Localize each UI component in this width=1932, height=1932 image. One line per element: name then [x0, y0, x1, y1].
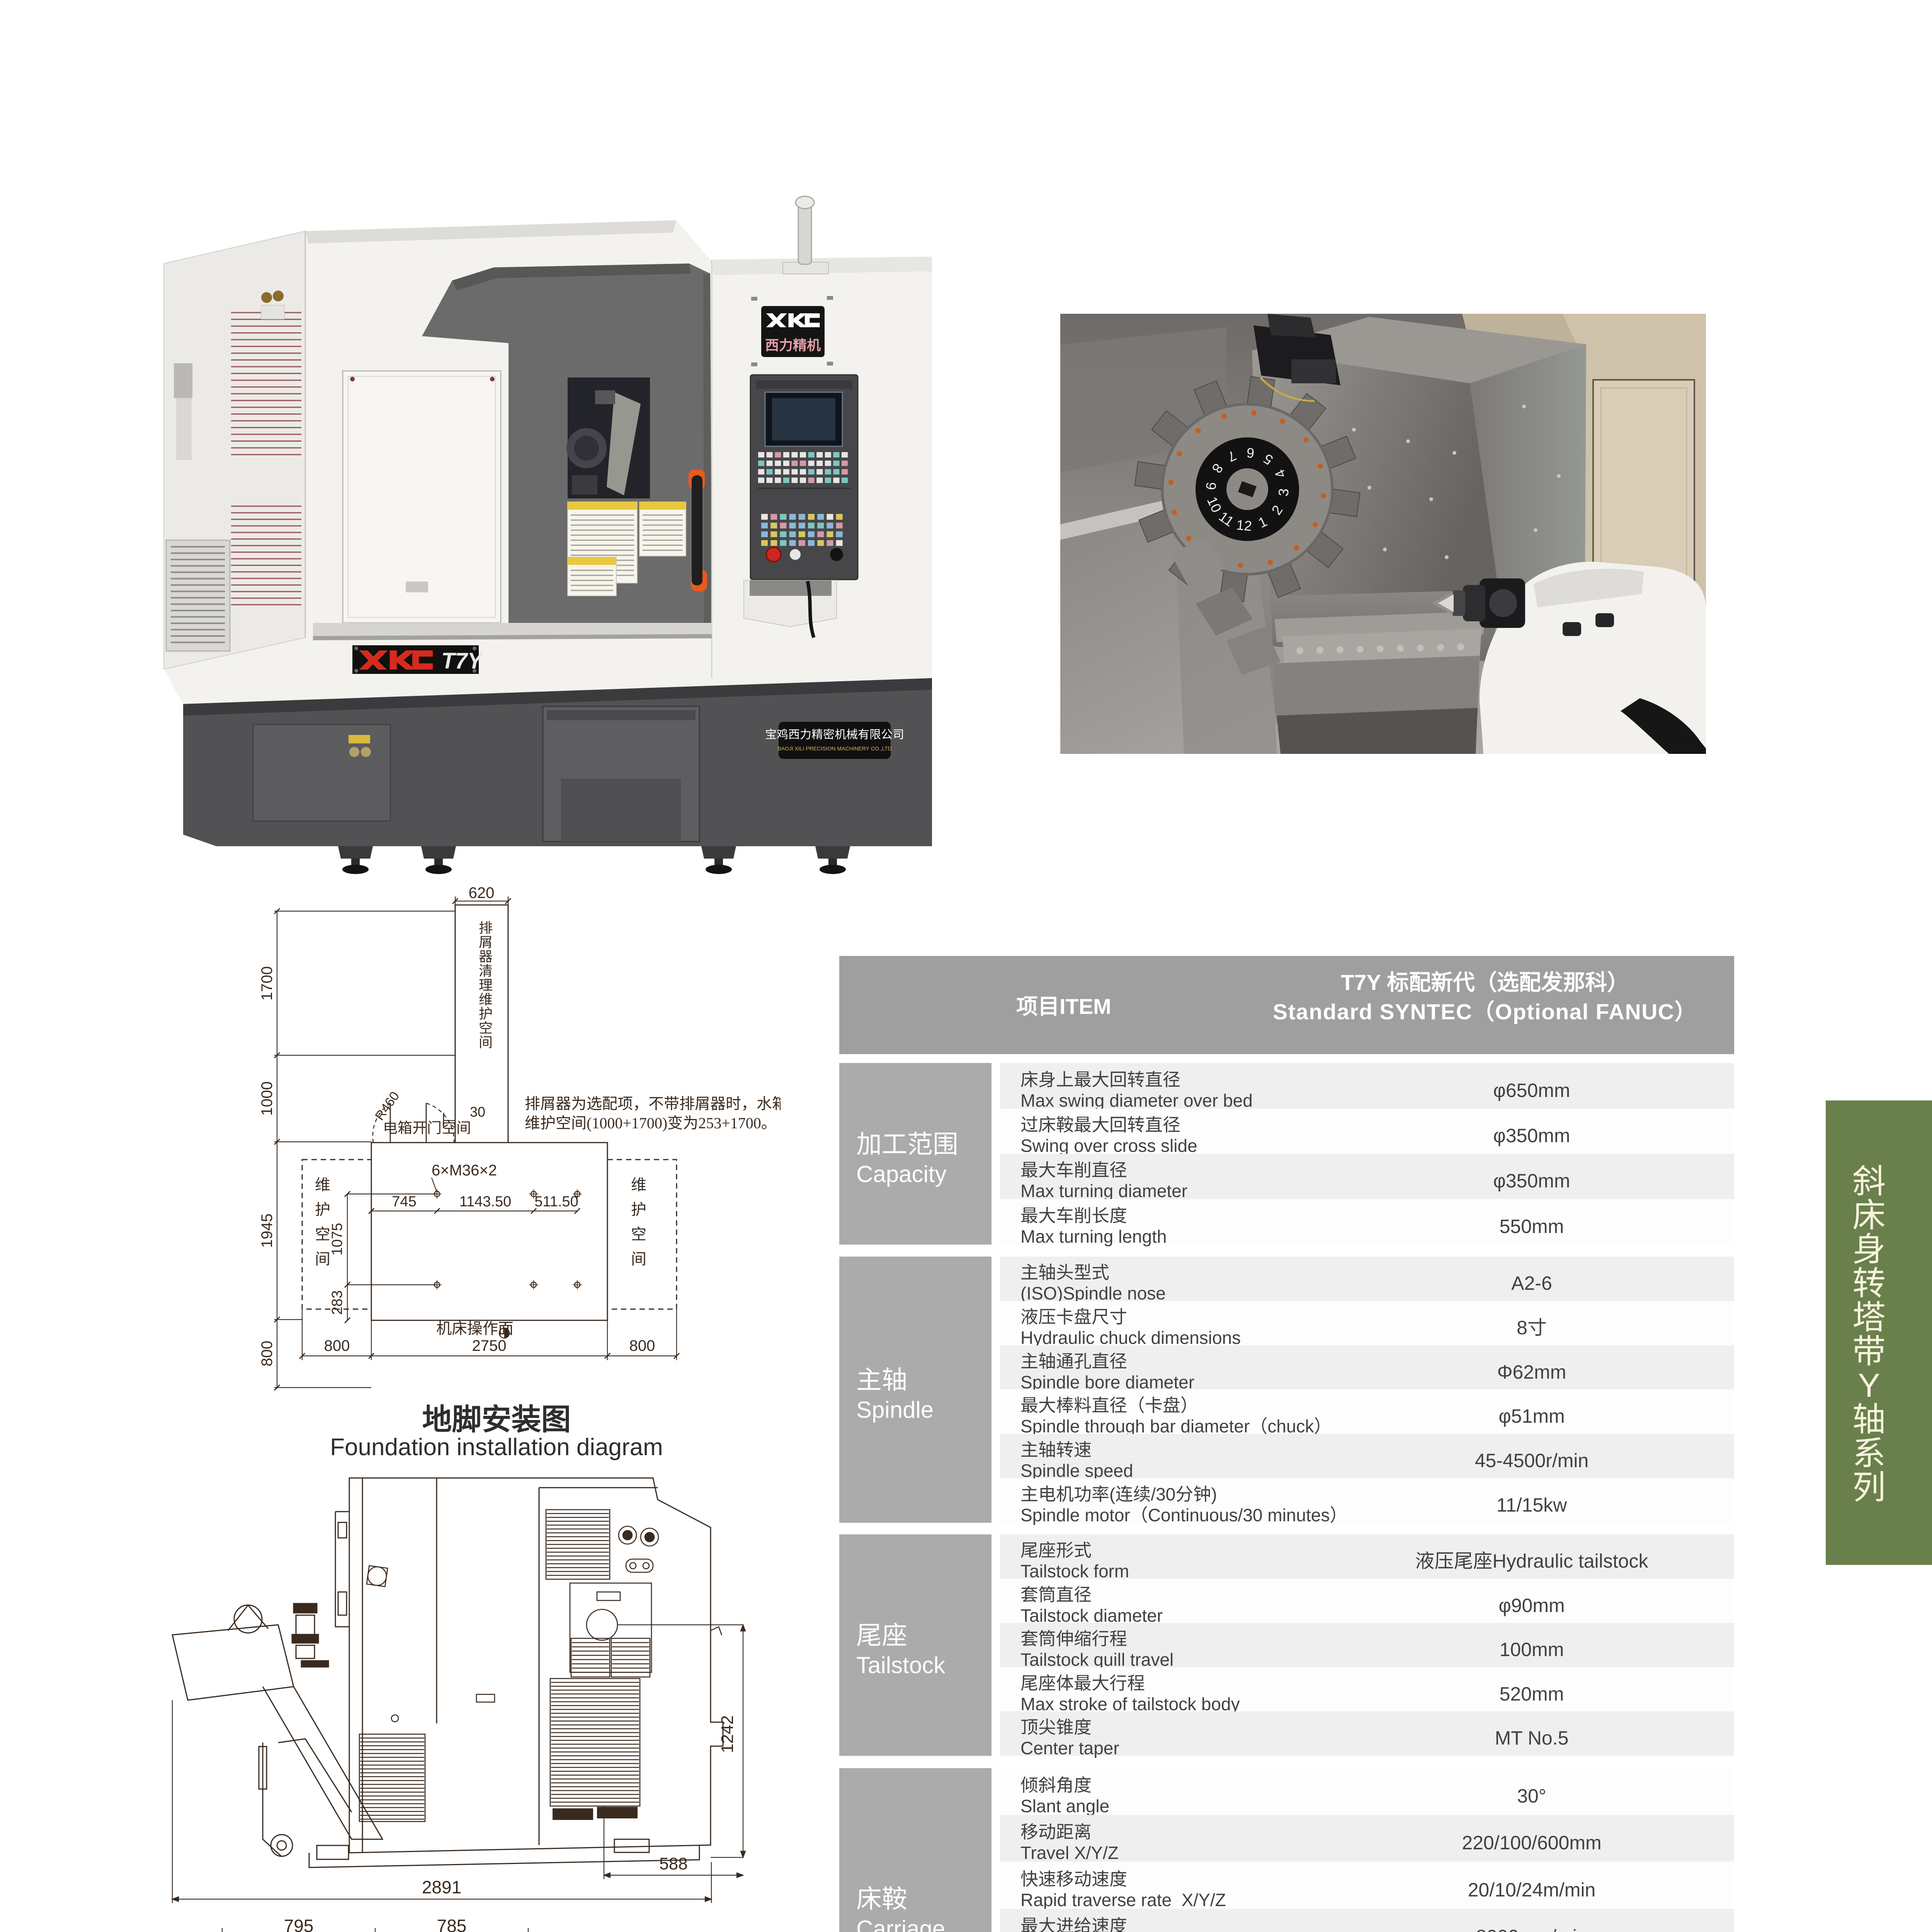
svg-text:9: 9	[1203, 481, 1219, 491]
svg-text:3: 3	[1275, 488, 1292, 497]
svg-text:维护空间(1000+1700)变为253+1700。: 维护空间(1000+1700)变为253+1700。	[525, 1111, 777, 1133]
svg-text:800: 800	[259, 1341, 276, 1367]
svg-text:护: 护	[631, 1197, 646, 1219]
svg-text:745: 745	[392, 1194, 416, 1210]
svg-text:6×M36×2: 6×M36×2	[432, 1162, 497, 1179]
svg-text:1242: 1242	[718, 1715, 737, 1753]
svg-text:12: 12	[1236, 517, 1252, 534]
svg-text:电箱开门空间: 电箱开门空间	[383, 1116, 471, 1137]
svg-text:795: 795	[284, 1917, 314, 1932]
svg-text:511.50: 511.50	[534, 1194, 578, 1210]
svg-text:机床操作面: 机床操作面	[436, 1316, 514, 1338]
svg-text:维: 维	[315, 1172, 330, 1195]
svg-text:6: 6	[1246, 445, 1255, 461]
svg-text:785: 785	[437, 1917, 467, 1932]
svg-text:宝鸡西力精密机械有限公司: 宝鸡西力精密机械有限公司	[765, 725, 904, 742]
svg-text:1700: 1700	[259, 966, 276, 1001]
svg-text:800: 800	[629, 1337, 655, 1354]
svg-text:空: 空	[315, 1222, 330, 1244]
svg-text:1000: 1000	[259, 1082, 276, 1116]
svg-text:283: 283	[329, 1290, 345, 1315]
svg-text:620: 620	[469, 884, 495, 901]
svg-text:588: 588	[659, 1854, 687, 1873]
svg-text:西力精机: 西力精机	[765, 334, 821, 354]
svg-text:1075: 1075	[329, 1223, 345, 1256]
svg-text:护: 护	[315, 1197, 330, 1219]
svg-text:T7Y: T7Y	[441, 648, 485, 673]
svg-text:空: 空	[631, 1222, 646, 1244]
svg-text:1945: 1945	[259, 1214, 276, 1248]
svg-text:800: 800	[324, 1337, 350, 1354]
svg-text:维: 维	[631, 1172, 646, 1195]
svg-text:1143.50: 1143.50	[459, 1194, 512, 1210]
svg-text:间: 间	[631, 1247, 646, 1269]
svg-text:BAOJI XILI PRECISION MACHINERY: BAOJI XILI PRECISION MACHINERY CO.,LTD	[777, 745, 892, 752]
svg-text:间: 间	[315, 1247, 330, 1269]
svg-text:间: 间	[479, 1031, 493, 1051]
svg-text:2891: 2891	[422, 1877, 461, 1897]
svg-text:2750: 2750	[472, 1337, 507, 1354]
svg-text:30: 30	[470, 1104, 485, 1120]
